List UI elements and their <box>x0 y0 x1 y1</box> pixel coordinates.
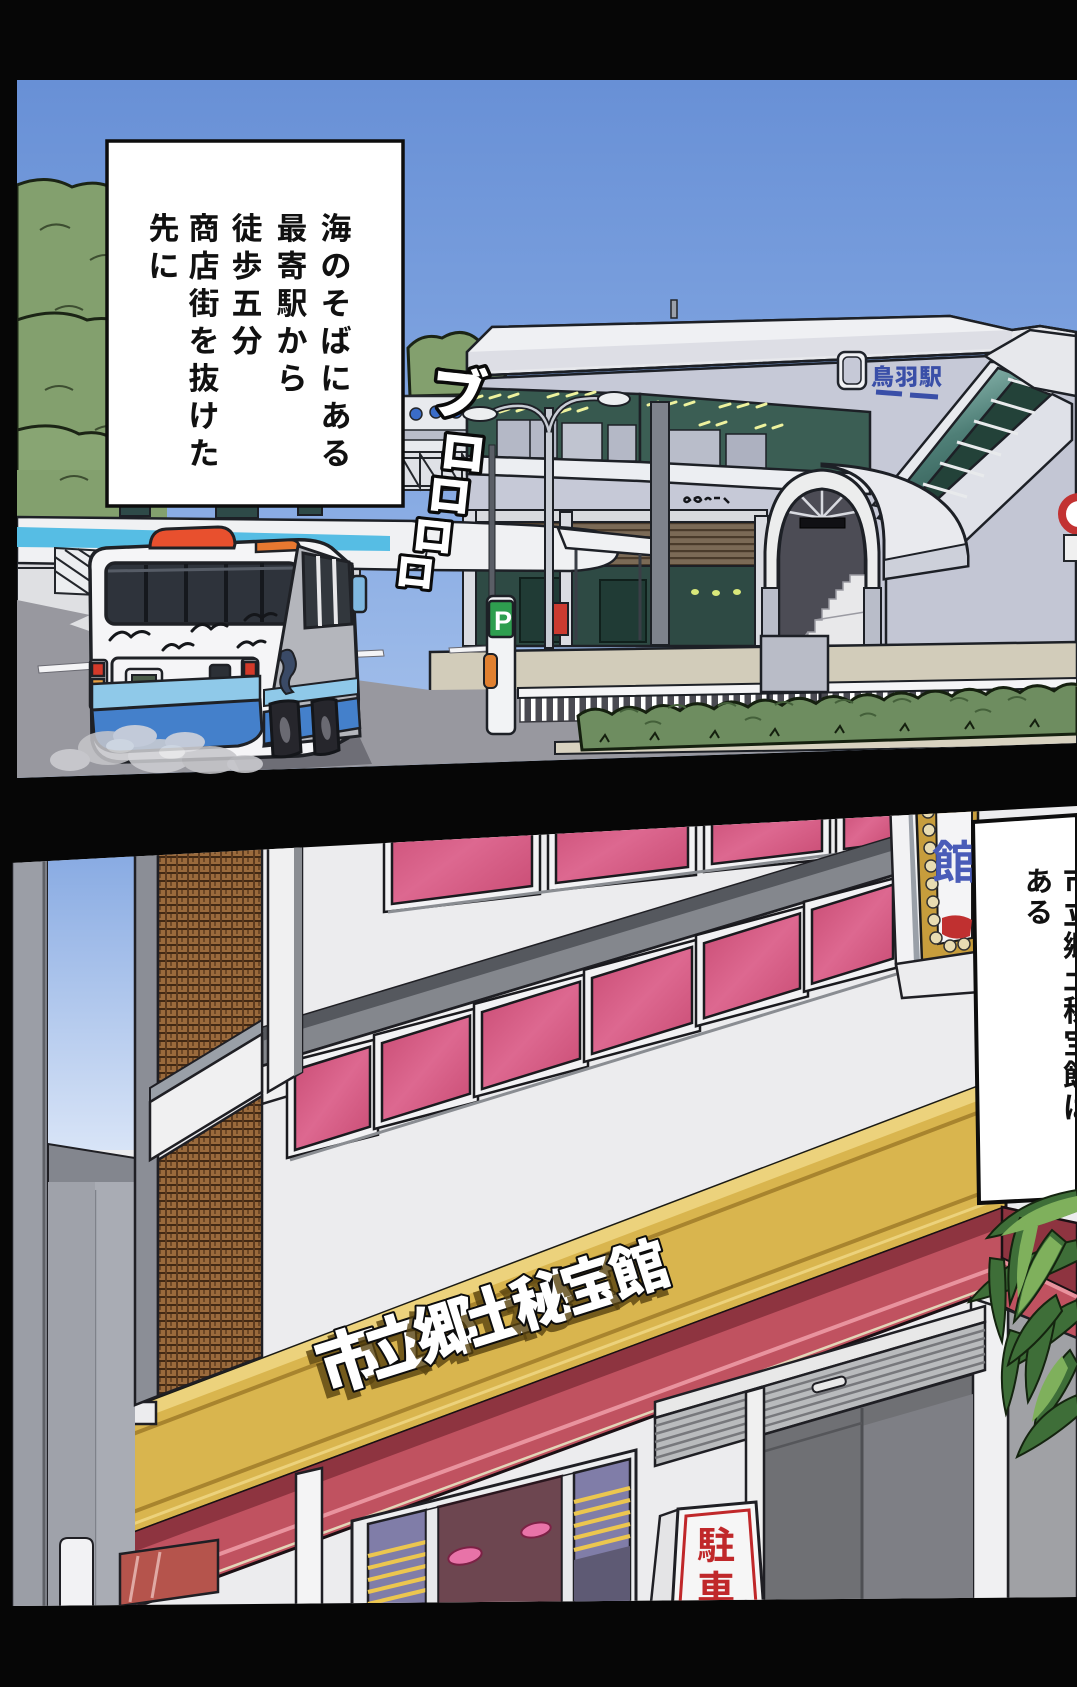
svg-text:P: P <box>494 606 512 636</box>
